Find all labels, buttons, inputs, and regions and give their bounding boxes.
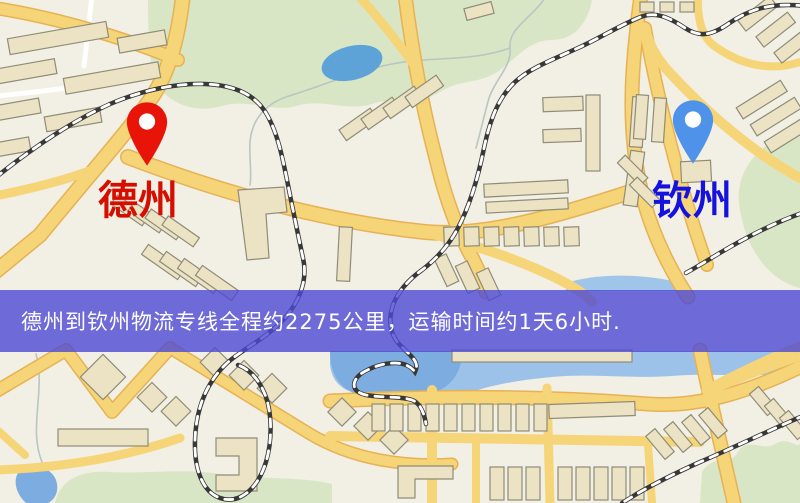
destination-label: 钦州 xyxy=(652,181,732,221)
destination-pin-icon xyxy=(670,97,716,167)
origin-label: 德州 xyxy=(98,181,178,221)
basemap-graphic xyxy=(0,0,800,503)
route-info-banner: 德州到钦州物流专线全程约2275公里，运输时间约1天6小时. xyxy=(0,290,800,352)
route-info-text: 德州到钦州物流专线全程约2275公里，运输时间约1天6小时. xyxy=(0,306,621,336)
map-image: 德州 钦州 德州到钦州物流专线全程约2275公里，运输时间约1天6小时. xyxy=(0,0,800,503)
origin-pin-icon xyxy=(124,99,170,169)
